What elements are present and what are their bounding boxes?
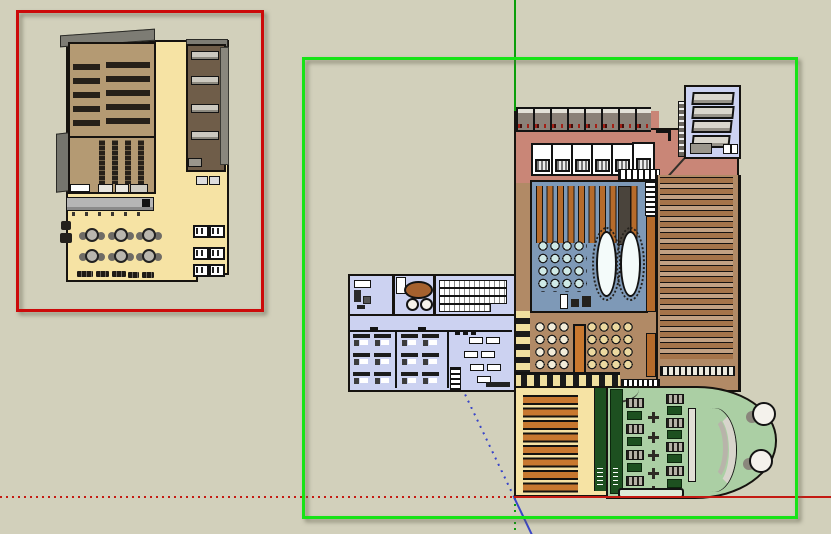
- red-selection-box: [16, 10, 264, 312]
- viewport-canvas[interactable]: [0, 0, 831, 534]
- green-selection-box: [302, 57, 798, 519]
